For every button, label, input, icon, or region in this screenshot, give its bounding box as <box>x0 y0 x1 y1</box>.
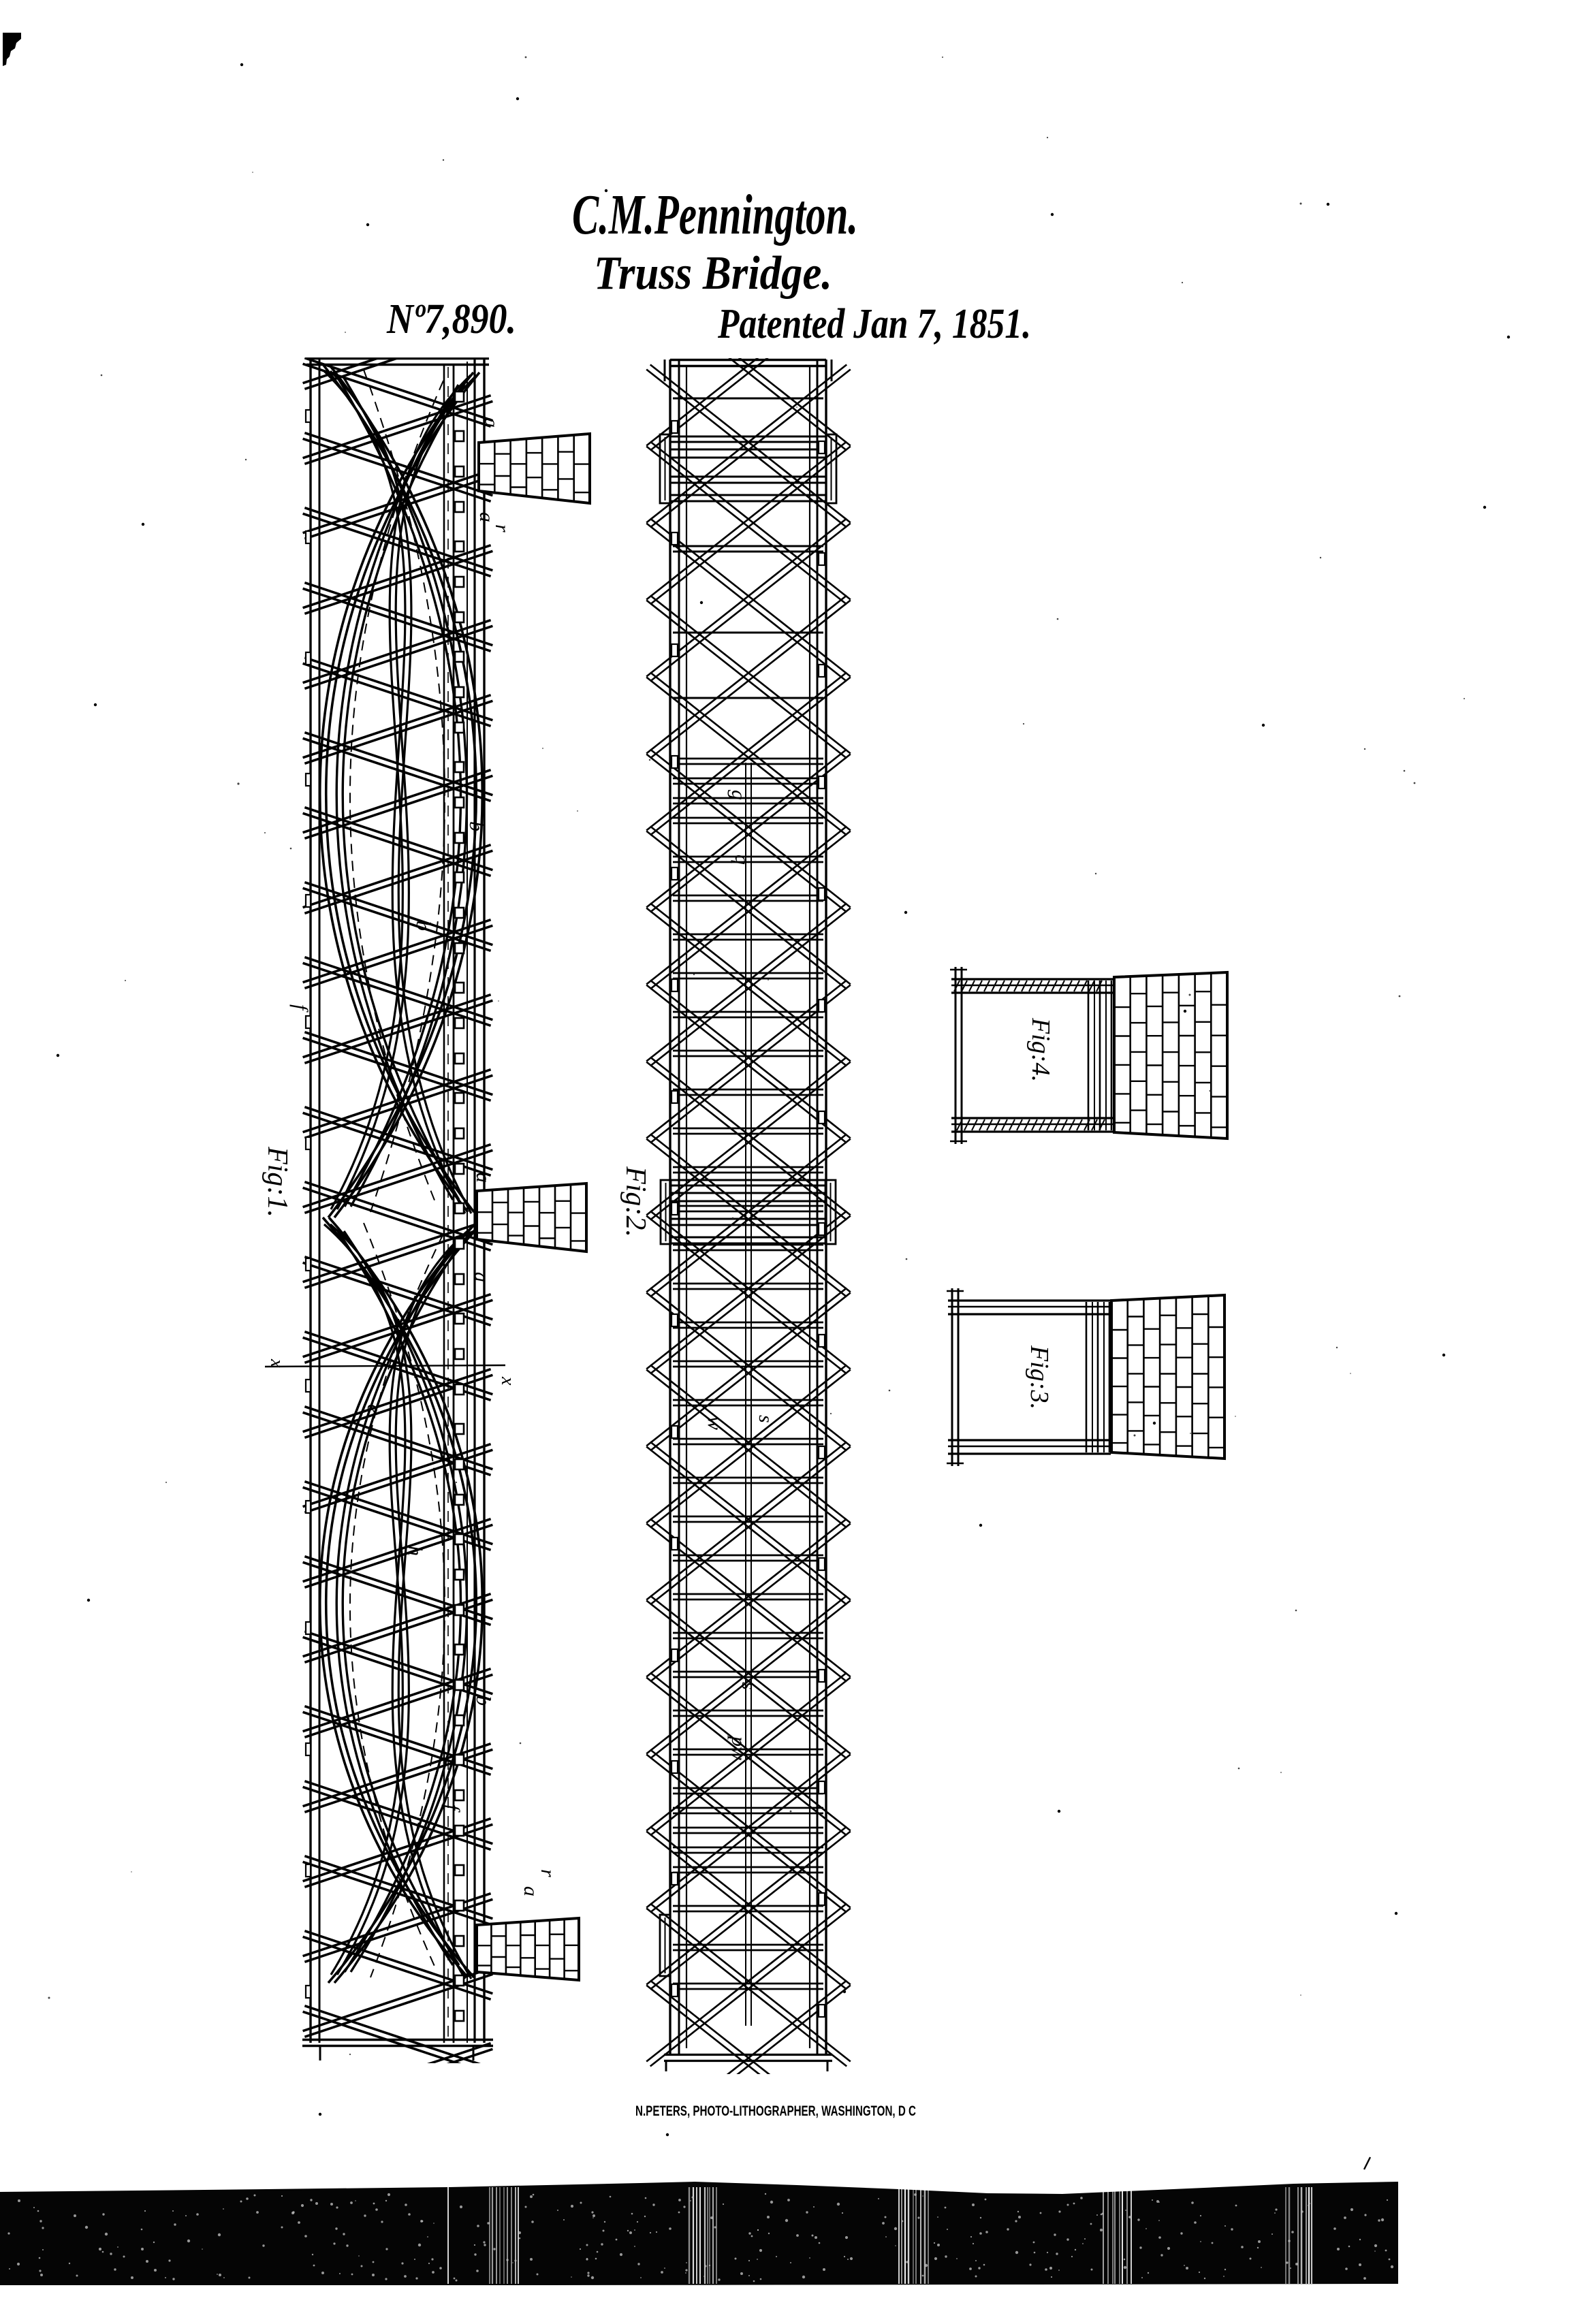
svg-text:Fig:4.: Fig:4. <box>1026 1017 1055 1082</box>
svg-text:Fig:3.: Fig:3. <box>1025 1345 1054 1410</box>
svg-text:b: b <box>412 921 434 931</box>
svg-text:Truss Bridge.: Truss Bridge. <box>594 247 832 300</box>
svg-text:N.PETERS, PHOTO-LITHOGRAPHER,: N.PETERS, PHOTO-LITHOGRAPHER, WASHINGTON… <box>635 2103 916 2119</box>
svg-text:a: a <box>470 1272 492 1282</box>
svg-text:C.M.Pennington.: C.M.Pennington. <box>572 183 858 246</box>
svg-text:a: a <box>480 417 503 428</box>
svg-text:q: q <box>731 855 753 865</box>
svg-text:Patented Jan 7, 1851.: Patented Jan 7, 1851. <box>717 301 1031 347</box>
svg-text:b: b <box>472 1696 494 1706</box>
svg-text:s: s <box>755 1415 777 1423</box>
svg-text:a: a <box>475 512 498 522</box>
svg-text:pw: pw <box>727 1735 750 1760</box>
svg-text:Nº7,890.: Nº7,890. <box>386 296 516 343</box>
svg-text:e: e <box>363 1404 385 1413</box>
svg-text:a: a <box>520 1886 542 1896</box>
svg-text:x: x <box>266 1358 287 1368</box>
svg-text:a: a <box>472 1173 494 1183</box>
svg-text:r: r <box>491 524 513 532</box>
svg-text:g: g <box>727 790 750 800</box>
svg-text:x: x <box>497 1376 518 1386</box>
svg-text:w: w <box>704 1416 726 1430</box>
svg-text:r: r <box>537 1869 559 1877</box>
svg-text:b: b <box>465 821 488 831</box>
svg-text:h: h <box>404 1546 426 1556</box>
svg-text:s: s <box>738 1682 760 1690</box>
svg-text:Fig:2.: Fig:2. <box>620 1166 651 1237</box>
svg-text:Fig:1.: Fig:1. <box>262 1146 293 1217</box>
